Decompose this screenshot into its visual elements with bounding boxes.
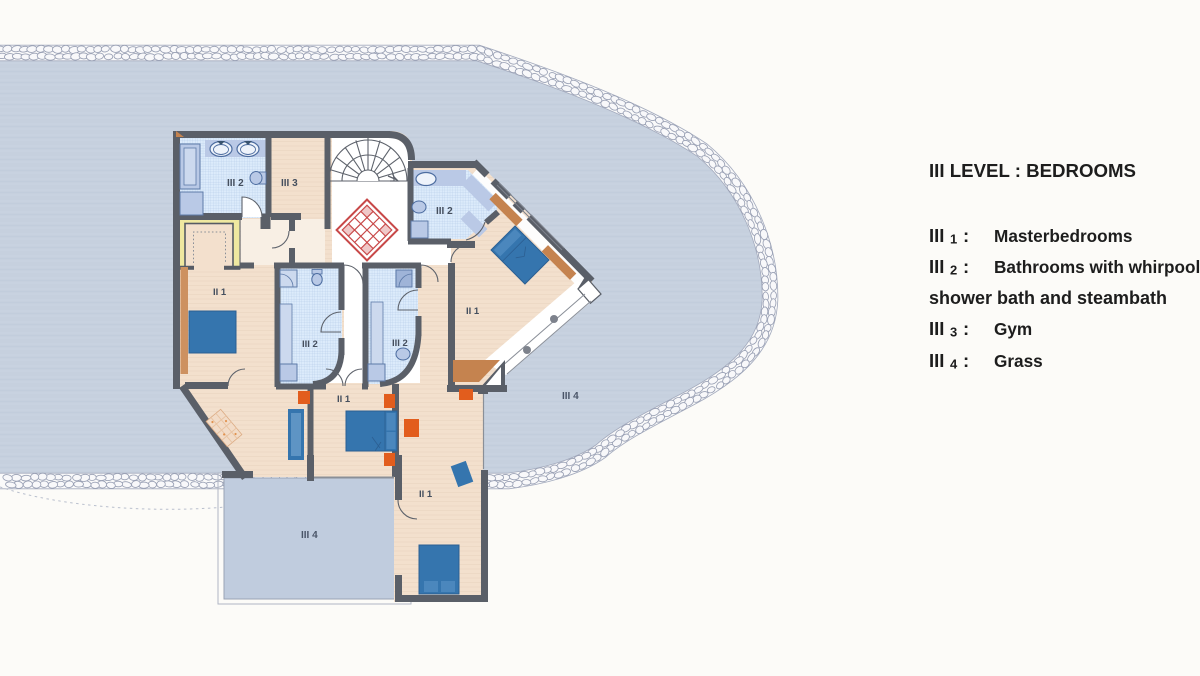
svg-text:Bathrooms with whirpool,: Bathrooms with whirpool, bbox=[994, 257, 1200, 277]
svg-text:II 1: II 1 bbox=[213, 287, 227, 298]
svg-text:III LEVEL : BEDROOMS: III LEVEL : BEDROOMS bbox=[929, 160, 1136, 181]
svg-text:III: III bbox=[929, 350, 944, 371]
svg-text:II 1: II 1 bbox=[466, 306, 480, 317]
svg-text:4: 4 bbox=[950, 357, 958, 372]
svg-text:III 2: III 2 bbox=[436, 206, 453, 217]
svg-text:III: III bbox=[929, 256, 944, 277]
svg-text:III 2: III 2 bbox=[392, 338, 408, 349]
svg-text:III 4: III 4 bbox=[301, 530, 318, 541]
svg-text::: : bbox=[963, 318, 969, 339]
svg-text:1: 1 bbox=[950, 232, 957, 247]
svg-text:Grass: Grass bbox=[994, 351, 1043, 371]
svg-text:shower bath and steambath: shower bath and steambath bbox=[929, 288, 1167, 308]
svg-text:III: III bbox=[929, 318, 944, 339]
svg-text::: : bbox=[963, 350, 969, 371]
svg-text:2: 2 bbox=[950, 263, 957, 278]
svg-text::: : bbox=[963, 225, 969, 246]
svg-text:III: III bbox=[929, 225, 944, 246]
svg-text:III 2: III 2 bbox=[302, 339, 318, 350]
svg-text:3: 3 bbox=[950, 325, 957, 340]
svg-text:III 4: III 4 bbox=[562, 391, 579, 402]
svg-text:Masterbedrooms: Masterbedrooms bbox=[994, 226, 1133, 246]
svg-text:III 3: III 3 bbox=[281, 178, 298, 189]
svg-text:III 2: III 2 bbox=[227, 178, 244, 189]
svg-text:II 1: II 1 bbox=[419, 489, 433, 500]
svg-text::: : bbox=[963, 256, 969, 277]
svg-text:II 1: II 1 bbox=[337, 394, 351, 405]
svg-text:Gym: Gym bbox=[994, 319, 1032, 339]
